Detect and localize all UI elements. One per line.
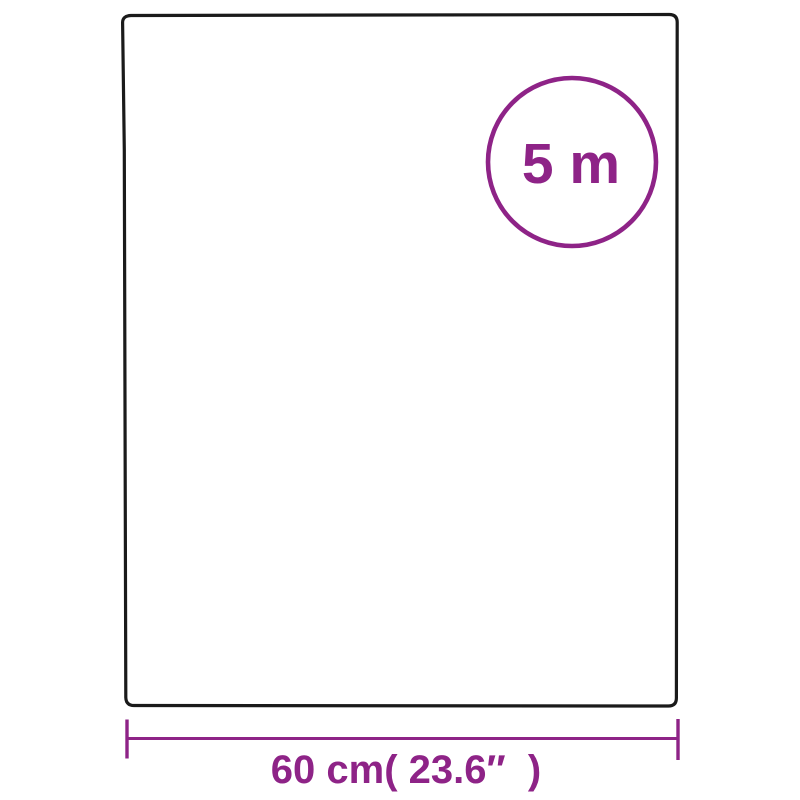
product-dimension-diagram: 5 m 60 cm( 23.6″ ) [0,0,800,800]
film-sheet-outline [123,14,678,706]
length-badge-label: 5 m [522,132,620,196]
dimension-diagram-canvas: 5 m 60 cm( 23.6″ ) [0,0,800,800]
width-dimension-label: 60 cm( 23.6″ ) [271,748,541,792]
width-dimension: 60 cm( 23.6″ ) [127,719,678,792]
